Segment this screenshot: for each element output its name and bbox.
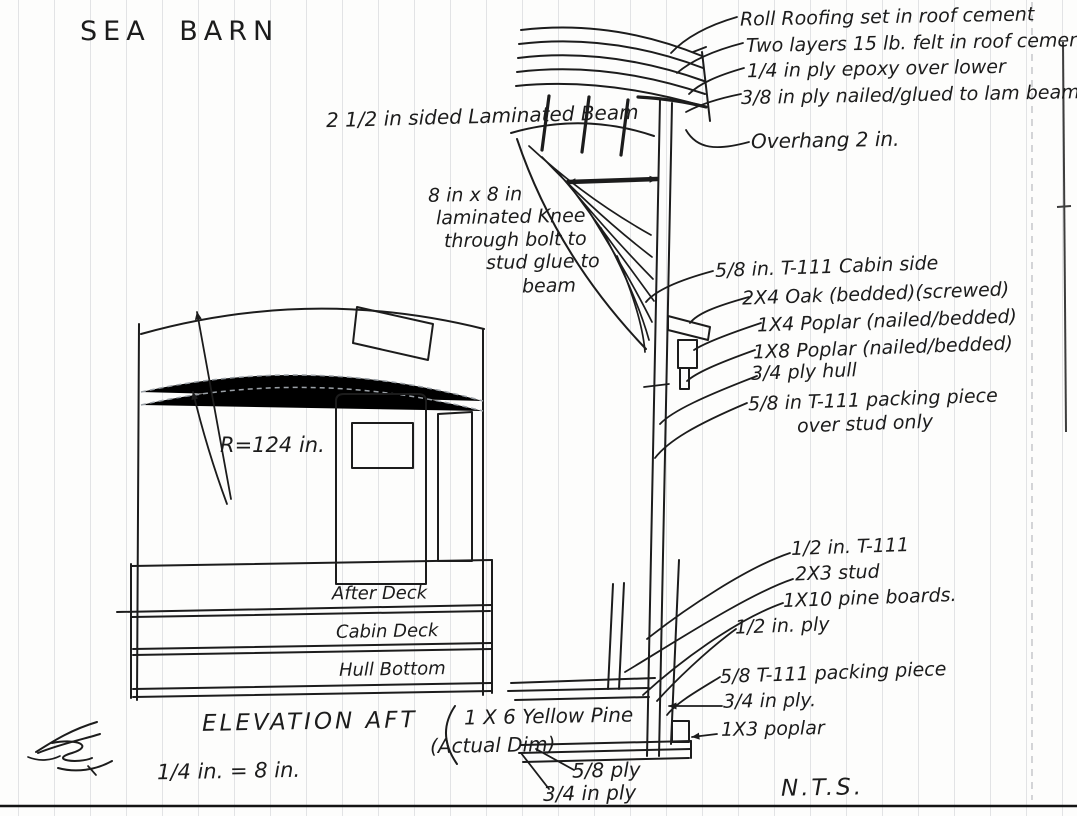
poplar-step	[672, 721, 689, 742]
callout-overhang: Overhang 2 in.	[751, 129, 900, 153]
label-hull-bottom: Hull Bottom	[339, 660, 446, 681]
poplar-batten-lower	[680, 368, 689, 389]
knee-note-line-2: laminated Knee	[436, 207, 586, 230]
through-bolt	[568, 179, 657, 182]
label-cabin-deck: Cabin Deck	[336, 622, 439, 643]
callout-2x3-stud: 2X3 stud	[795, 563, 880, 586]
label-five-eighth-ply: 5/8 ply	[572, 759, 641, 781]
label-actual-dim: (Actual Dim)	[430, 734, 556, 757]
signature-scribble	[28, 722, 112, 775]
side-panel	[438, 412, 472, 561]
nts-note: N.T.S.	[781, 775, 864, 801]
callout-half-ply: 1/2 in. ply	[735, 615, 830, 638]
knee-note-line-5: beam	[522, 277, 576, 298]
scanned-drawing-page: SEA BARN Roll Roofing set in roof cement…	[0, 0, 1077, 816]
oak-ledge	[668, 316, 710, 340]
drawing-title: ELEVATION AFT	[202, 708, 418, 736]
roof-hatch-opening	[353, 307, 433, 360]
label-after-deck: After Deck	[332, 585, 427, 605]
label-radius: R=124 in.	[220, 434, 325, 456]
knee-note-line-4: stud glue to	[486, 252, 600, 274]
poplar-batten-upper	[678, 340, 697, 368]
scale-note: 1/4 in. = 8 in.	[157, 759, 300, 784]
door-window	[352, 423, 413, 468]
callout-three-quarter-ply: 3/4 in ply.	[723, 691, 816, 713]
label-yellow-pine: 1 X 6 Yellow Pine	[464, 705, 634, 729]
roof-edge-detail-drawing	[511, 27, 710, 352]
callout-three-quarter-ply-hull: 3/4 ply hull	[751, 361, 858, 385]
knee-note-line-1: 8 in x 8 in	[428, 185, 523, 207]
callout-1x3-poplar: 1X3 poplar	[721, 719, 825, 741]
callout-half-t111: 1/2 in. T-111	[791, 536, 910, 560]
knee-note-line-3: through bolt to	[444, 230, 587, 252]
label-three-quarter-in-ply: 3/4 in ply	[543, 782, 637, 805]
page-title: SEA BARN	[80, 18, 279, 46]
